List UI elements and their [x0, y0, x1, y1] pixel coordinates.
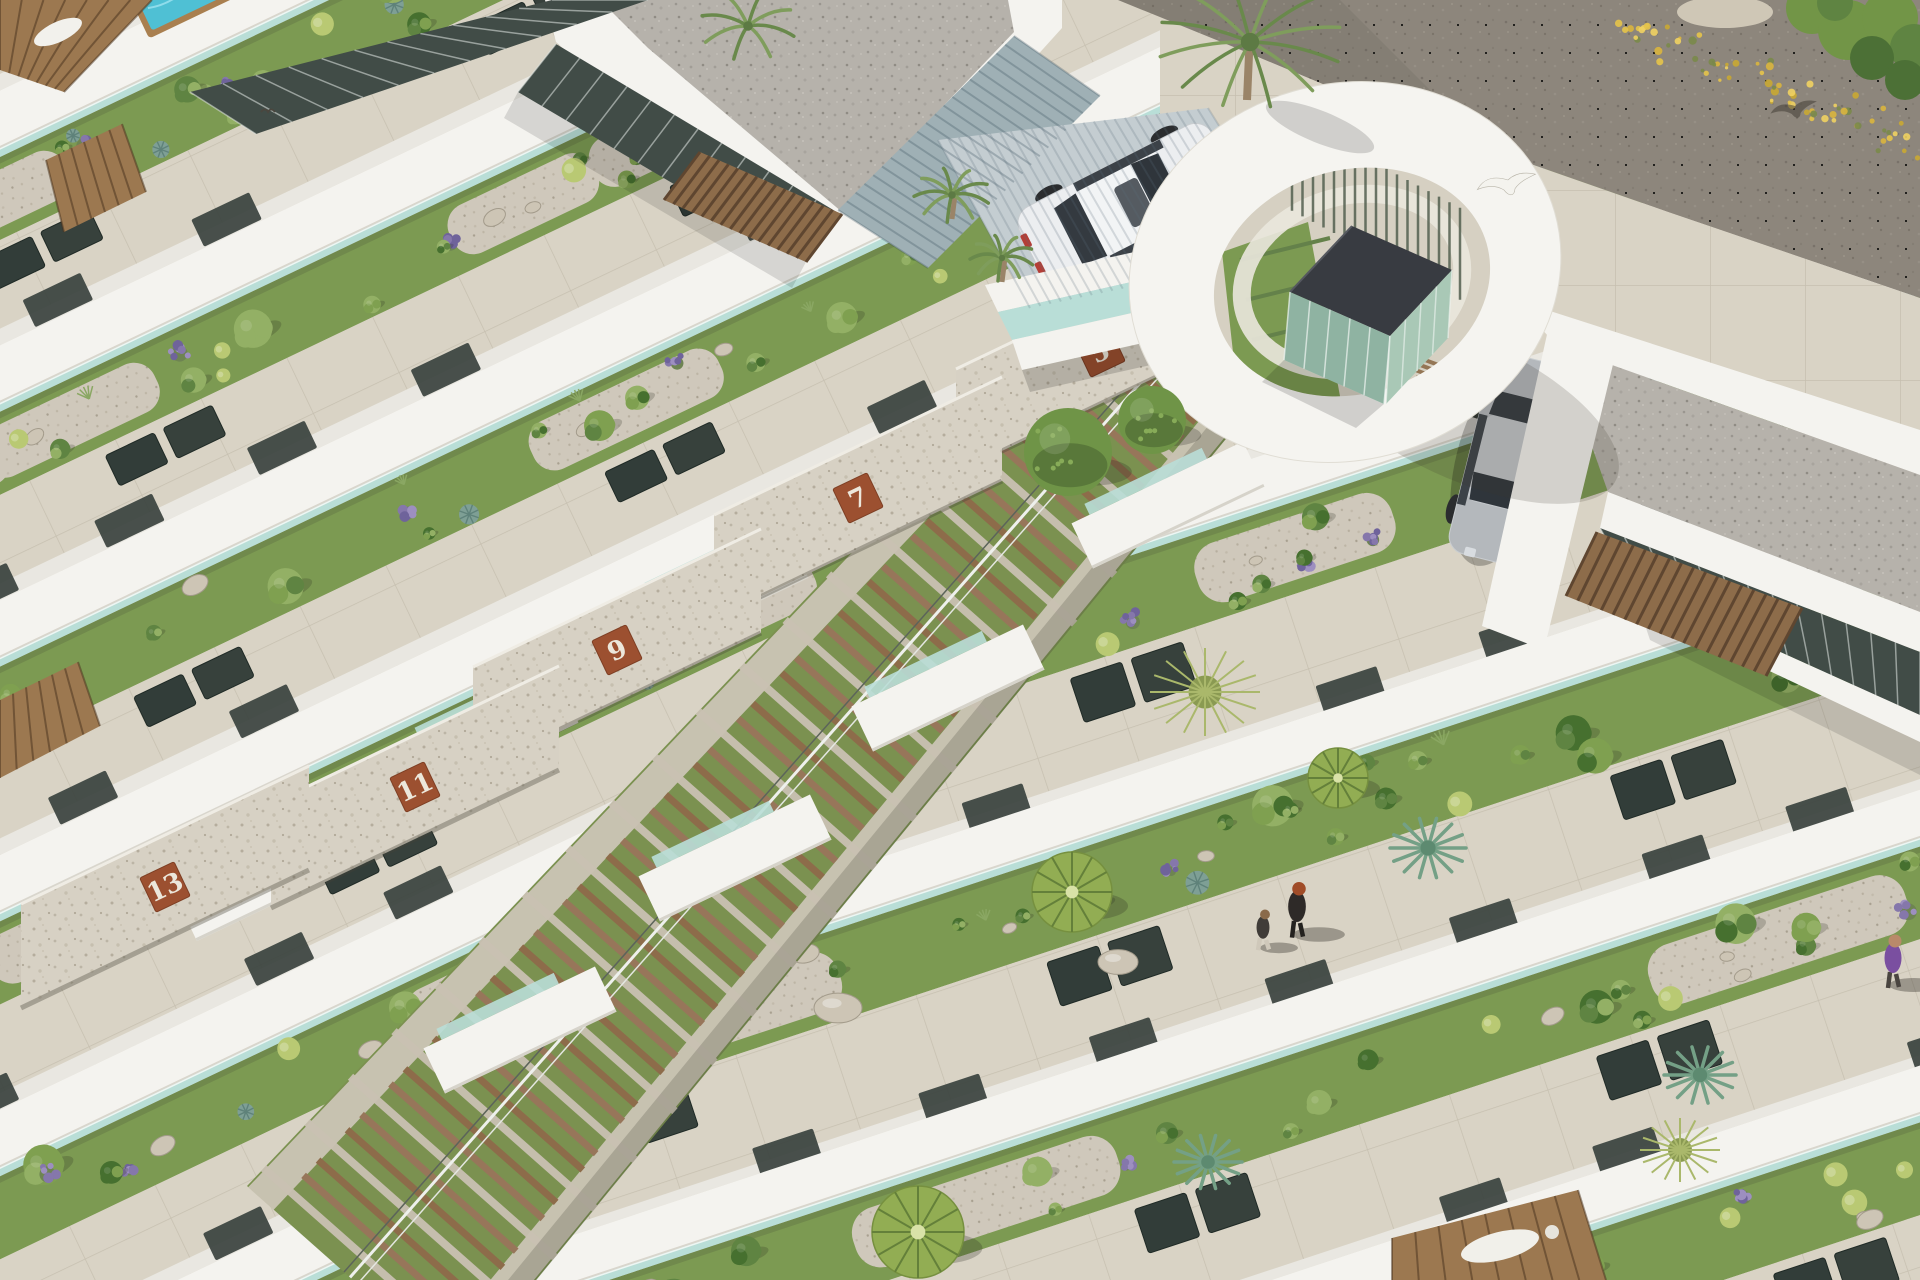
- scene-svg: 5791113: [0, 0, 1920, 1280]
- aerial-render: 5791113: [0, 0, 1920, 1280]
